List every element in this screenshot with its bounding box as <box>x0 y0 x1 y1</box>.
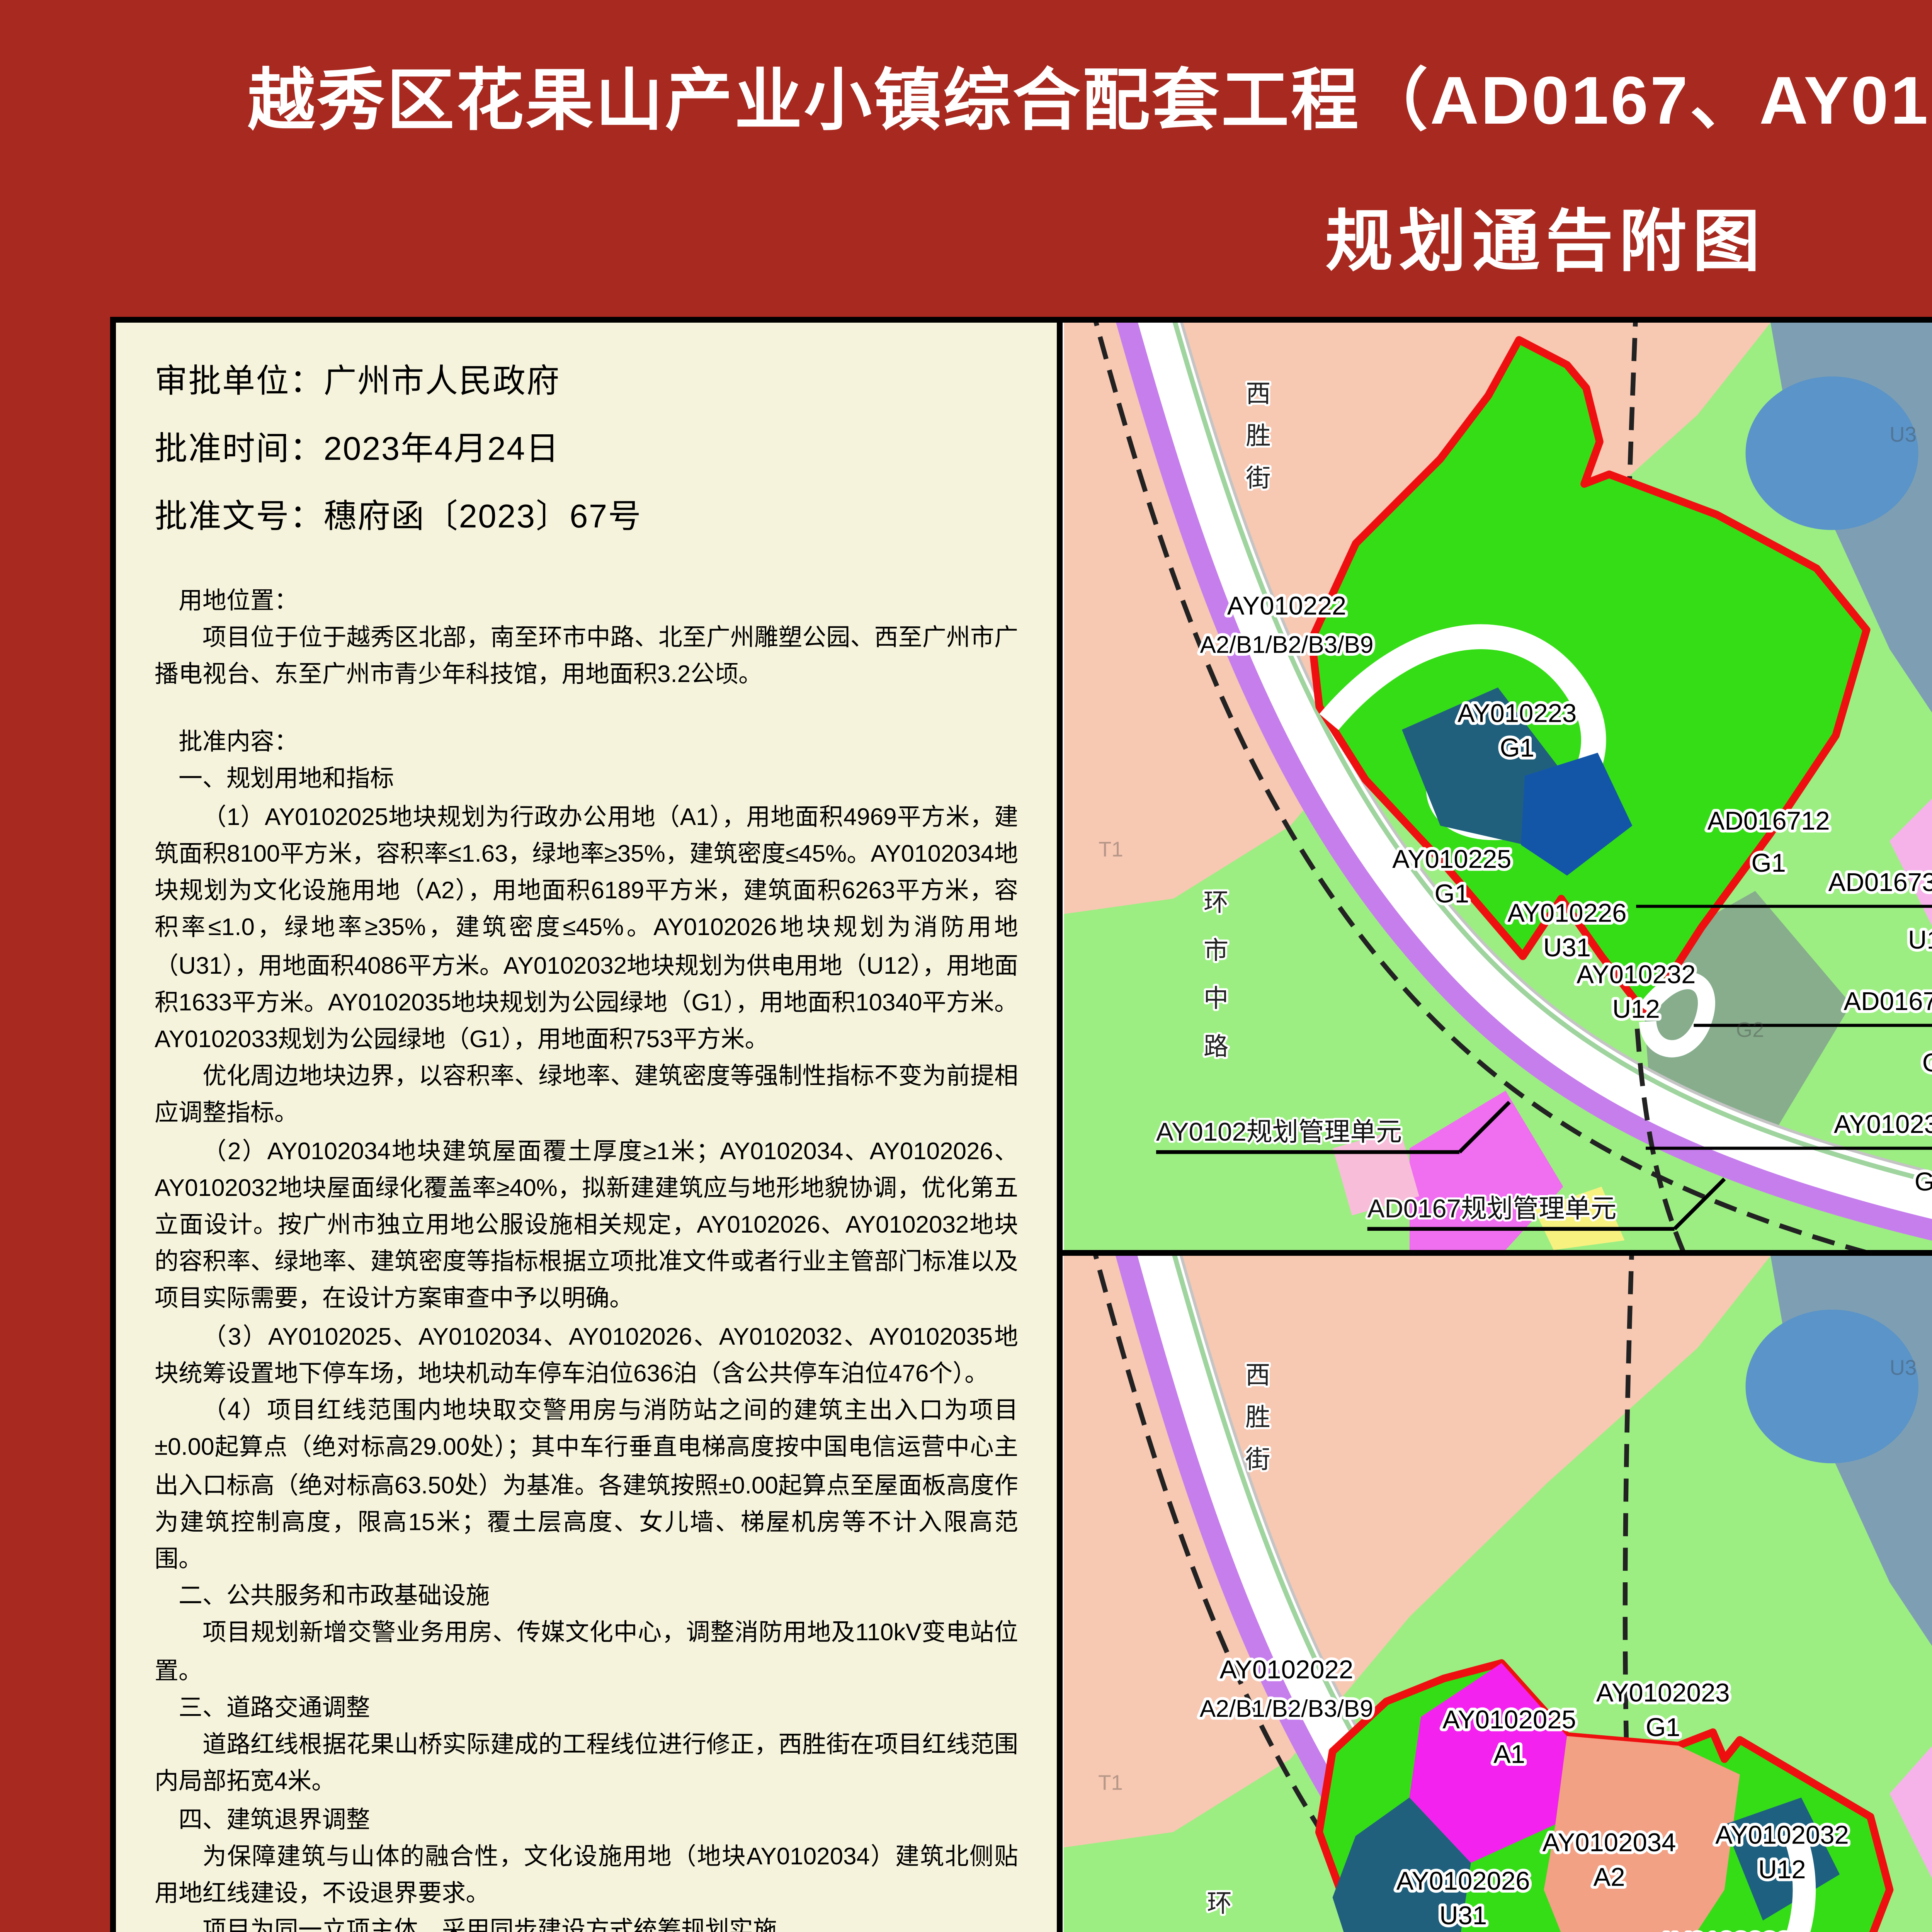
approval-date: 批准时间：2023年4月24日 <box>155 417 1018 484</box>
paragraph: 四、建筑退界调整 <box>155 1802 1018 1839</box>
parcel-ay010226-id: AY010226 <box>1507 898 1626 927</box>
parcel-ay0102026-code: U31 <box>1439 1901 1487 1930</box>
parcel-ad016733-id: AD016733 <box>1844 987 1932 1016</box>
approval-text-panel: 审批单位：广州市人民政府 批准时间：2023年4月24日 批准文号：穗府函〔20… <box>116 323 1063 1932</box>
parcel-ad016712-code: G1 <box>1751 849 1786 878</box>
parcel-ad016732-id: AD016732 <box>1828 868 1932 897</box>
paragraph: 项目位于位于越秀区北部，南至环市中路、北至广州雕塑公园、西至广州市广播电视台、东… <box>155 620 1018 694</box>
paragraph: 用地位置： <box>155 583 1018 620</box>
unit-ay0102-label: AY0102规划管理单元 <box>1156 1117 1402 1146</box>
zone-u3: U3 <box>1889 1355 1917 1379</box>
road-xisheng-label: 西胜街 <box>1242 380 1270 507</box>
parcel-ay0102023-code: G1 <box>1646 1713 1680 1742</box>
parcel-ay0102033-id: AY0102033 <box>1658 1928 1791 1932</box>
parcel-ad016712-id: AD016712 <box>1708 806 1830 835</box>
parcel-ay010222-id: AY010222 <box>1227 591 1346 620</box>
zone-u3: U3 <box>1889 423 1917 446</box>
paragraph: 一、规划用地和指标 <box>155 762 1018 799</box>
parcel-ay010225-id: AY010225 <box>1392 845 1511 874</box>
zone-g2: G2 <box>1736 1018 1764 1041</box>
parcel-ay0102034-code: A2 <box>1593 1863 1625 1892</box>
paragraph: （2）AY0102034地块建筑屋面覆土厚度≥1米；AY0102034、AY01… <box>155 1133 1018 1319</box>
parcel-ay0102034-id: AY0102034 <box>1543 1828 1676 1857</box>
original-plan-panel: U3 G2 A3 T1 AY010222 A2/B1/B2/B3/B9 AY01… <box>1063 323 1932 1250</box>
approval-number: 批准文号：穗府函〔2023〕67号 <box>155 484 1018 551</box>
adjusted-plan-map: U3 G2 A3 C6 T1 AY0102022 A2/B1/B2/B3/B9 … <box>1063 1256 1932 1932</box>
paragraph: 道路红线根据花果山桥实际建成的工程线位进行修正，西胜街在项目红线范围内局部拓宽4… <box>155 1727 1018 1801</box>
parcel-ay0102025-id: AY0102025 <box>1442 1705 1576 1734</box>
parcel-ay0102032-id: AY0102032 <box>1715 1820 1849 1849</box>
plan-notice-sheet: 越秀区花果山产业小镇综合配套工程（AD0167、AY0102规划管理单元）控制性… <box>0 0 1932 1932</box>
parcel-ay010233-id: AY010233 <box>1834 1110 1932 1139</box>
paragraph: 为保障建筑与山体的融合性，文化设施用地（地块AY0102034）建筑北侧贴用地红… <box>155 1839 1018 1913</box>
approval-block: 审批单位：广州市人民政府 批准时间：2023年4月24日 批准文号：穗府函〔20… <box>155 350 1018 552</box>
content-frame: 审批单位：广州市人民政府 批准时间：2023年4月24日 批准文号：穗府函〔20… <box>110 317 1932 1932</box>
adjusted-plan-panel: U3 G2 A3 C6 T1 AY0102022 A2/B1/B2/B3/B9 … <box>1063 1250 1932 1932</box>
original-plan-map: U3 G2 A3 T1 AY010222 A2/B1/B2/B3/B9 AY01… <box>1063 323 1932 1250</box>
paragraph: 批准内容： <box>155 725 1018 762</box>
page-title-line1: 越秀区花果山产业小镇综合配套工程（AD0167、AY0102规划管理单元）控制性… <box>77 46 1932 145</box>
road-xisheng-label: 西胜街 <box>1242 1361 1270 1488</box>
parcel-ay010225-code: G1 <box>1435 879 1469 908</box>
zone-t1: T1 <box>1098 1770 1123 1794</box>
paragraph: 项目规划新增交警业务用房、传媒文化中心，调整消防用地及110kV变电站位置。 <box>155 1616 1018 1690</box>
parcel-ad016733-code: G1 <box>1922 1048 1932 1077</box>
road-huanshi-label: 环市中路 <box>1200 889 1228 1081</box>
paragraph: 项目为同一立项主体，采用同步建设方式统筹规划实施。 <box>155 1913 1018 1932</box>
paragraph: （1）AY0102025地块规划为行政办公用地（A1），用地面积4969平方米，… <box>155 799 1018 1059</box>
parcel-ay0102026-id: AY0102026 <box>1396 1867 1530 1896</box>
parcel-ay0102023-id: AY0102023 <box>1596 1678 1730 1707</box>
parcel-ay0102032-code: U12 <box>1758 1855 1806 1884</box>
approval-agency: 审批单位：广州市人民政府 <box>155 350 1018 417</box>
parcel-ay010226-code: U31 <box>1543 933 1591 962</box>
unit-ad0167-label: AD0167规划管理单元 <box>1367 1194 1617 1223</box>
parcel-ay010232-id: AY010232 <box>1577 960 1696 989</box>
parcel-ad016732-code: U12 <box>1908 925 1932 954</box>
screenshot-stage: 越秀区花果山产业小镇综合配套工程（AD0167、AY0102规划管理单元）控制性… <box>0 0 1932 1932</box>
paragraph: （4）项目红线范围内地块取交警用房与消防站之间的建筑主出入口为项目±0.00起算… <box>155 1393 1018 1579</box>
parcel-ay010222-code: A2/B1/B2/B3/B9 <box>1200 632 1374 658</box>
road-huanshi-label: 环市中路 <box>1203 1890 1231 1932</box>
paragraph: 优化周边地块边界，以容积率、绿地率、建筑密度等强制性指标不变为前提相应调整指标。 <box>155 1059 1018 1133</box>
parcel-ay0102025-code: A1 <box>1493 1740 1525 1769</box>
body-paragraphs: 用地位置：项目位于位于越秀区北部，南至环市中路、北至广州雕塑公园、西至广州市广播… <box>155 583 1018 1932</box>
paragraph: 三、道路交通调整 <box>155 1690 1018 1727</box>
paragraph: 二、公共服务和市政基础设施 <box>155 1579 1018 1616</box>
parcel-ay0102022-code: A2/B1/B2/B3/B9 <box>1200 1696 1373 1722</box>
parcel-ay010223-id: AY010223 <box>1458 699 1577 728</box>
zone-t1: T1 <box>1099 837 1123 861</box>
parcel-ay010232-code: U12 <box>1612 995 1660 1024</box>
paragraph: （3）AY0102025、AY0102034、AY0102026、AY01020… <box>155 1319 1018 1393</box>
maps-column: U3 G2 A3 T1 AY010222 A2/B1/B2/B3/B9 AY01… <box>1063 323 1932 1932</box>
parcel-ay010223-code: G1 <box>1500 733 1534 762</box>
page-title-line2: 规划通告附图 <box>77 187 1932 286</box>
parcel-ay0102022-id: AY0102022 <box>1219 1655 1353 1684</box>
parcel-ay010233-code: G1 <box>1915 1167 1932 1196</box>
